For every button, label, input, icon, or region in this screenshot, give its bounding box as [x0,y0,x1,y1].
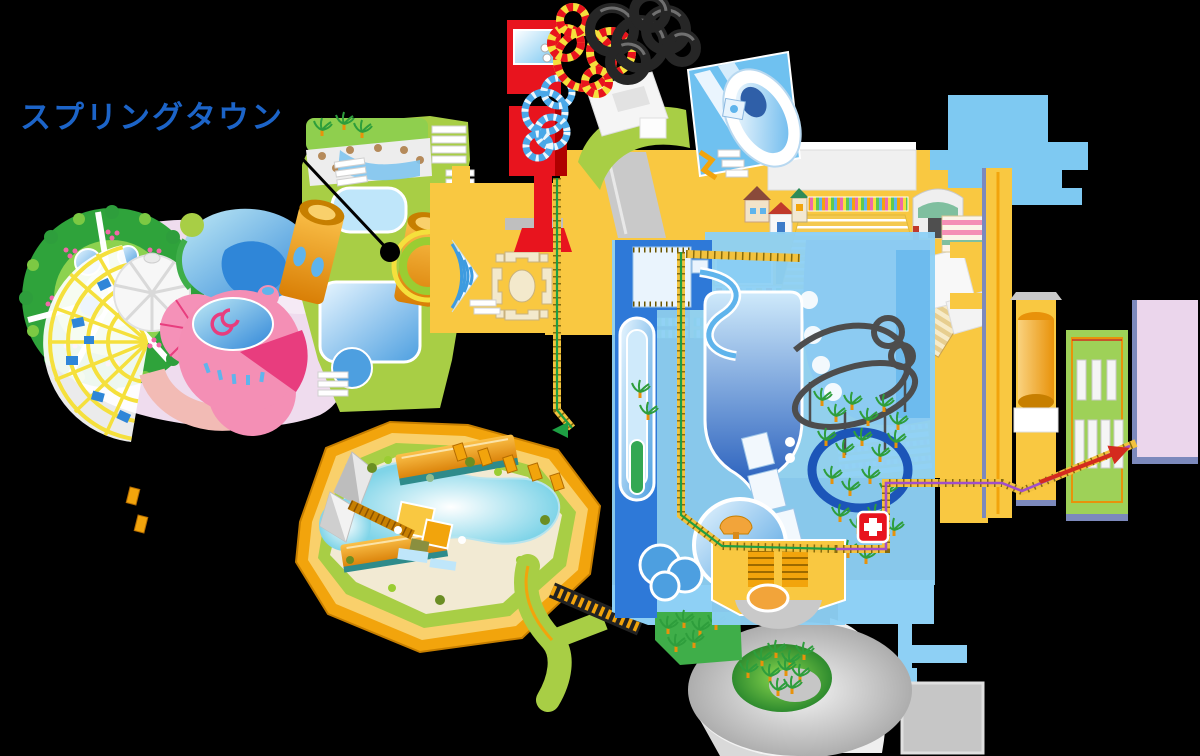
first-aid-icon [858,512,888,542]
lap-pool [620,318,658,500]
park-map-stage: スプリングタウン [0,0,1200,756]
central-waterpark [612,232,935,629]
green-arrow-icon [552,422,568,438]
zone-label-spring-town: スプリングタウン [20,92,284,137]
upper-pool [332,188,406,232]
gate-block [1066,330,1128,521]
orange-canopy [748,585,788,611]
lavender-block [1132,300,1198,464]
grey-block [902,683,983,753]
rainbow-wall [808,197,908,211]
leader-dot [380,242,400,262]
